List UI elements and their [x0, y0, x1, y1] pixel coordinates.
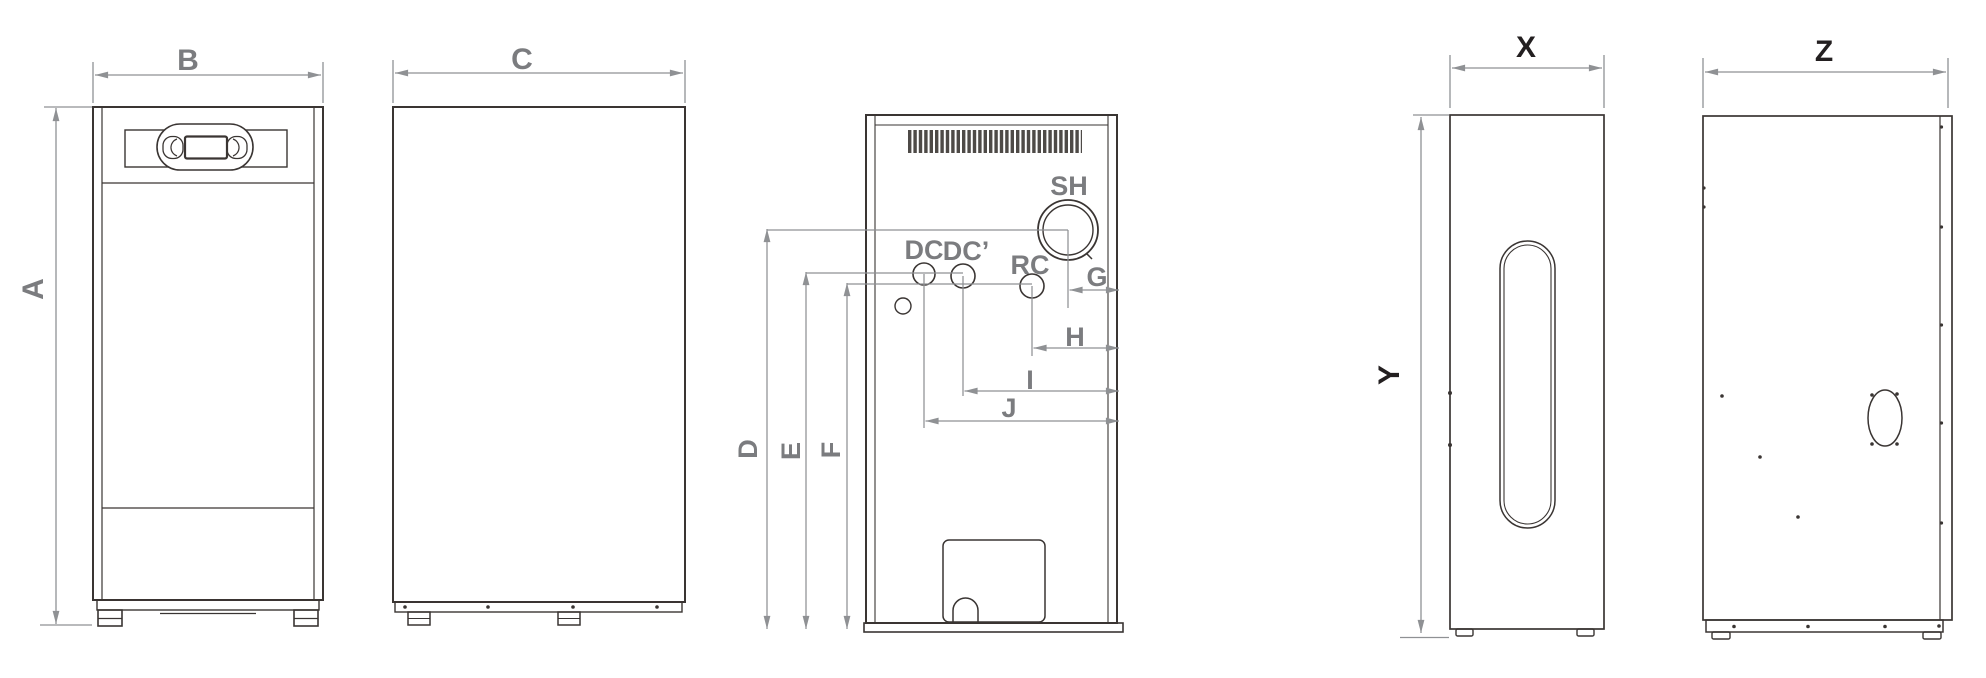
front-base-strip: [97, 600, 319, 610]
door-edge-screw: [1940, 225, 1943, 228]
panel-hinge-dot: [1448, 391, 1452, 395]
side-view: C: [393, 43, 685, 625]
oval-screw: [1895, 442, 1899, 446]
oval-screw: [1895, 392, 1899, 396]
edge-screw: [1702, 186, 1705, 189]
dimension-b: B: [93, 44, 323, 103]
dimension-y: Y: [1373, 115, 1449, 638]
dimension-c: C: [393, 43, 685, 103]
label-g: G: [1086, 262, 1107, 292]
label-sh: SH: [1050, 171, 1088, 201]
label-d: D: [733, 439, 763, 459]
label-i: I: [1026, 365, 1034, 395]
access-panel: [943, 540, 1045, 622]
front-body-outline: [93, 107, 323, 600]
label-b: B: [177, 44, 199, 77]
access-panel-arch: [953, 598, 978, 622]
label-rc: RC: [1011, 250, 1050, 280]
small-port-circle: [895, 298, 911, 314]
dimension-drawing-page: A B C: [0, 0, 1986, 678]
label-x: X: [1516, 31, 1536, 64]
label-z: Z: [1815, 35, 1833, 68]
side-base-screw: [403, 605, 407, 609]
oval-screw: [1870, 393, 1874, 397]
panel-display: [185, 137, 227, 159]
window-slot-outer: [1500, 241, 1555, 528]
panel-screw: [1758, 455, 1762, 459]
panel-hinge-dot: [1448, 443, 1452, 447]
door-edge-screw: [1940, 323, 1943, 326]
base-plate-screw: [1732, 625, 1736, 629]
label-c: C: [511, 43, 533, 76]
side-body-outline: [393, 107, 685, 602]
right-panel-left-foot: [1456, 629, 1473, 636]
left-panel-right-foot: [1923, 632, 1941, 639]
rear-base-band: [864, 623, 1123, 632]
door-edge-screw: [1940, 421, 1943, 424]
side-base-screw: [655, 605, 659, 609]
side-base-plate: [395, 602, 682, 612]
label-h: H: [1065, 322, 1085, 352]
left-panel-outline: [1703, 116, 1952, 620]
base-plate-screw: [1937, 624, 1941, 628]
label-j: J: [1001, 393, 1016, 423]
front-view: A B: [17, 44, 323, 626]
port-sh-tick: [1086, 253, 1092, 259]
label-a: A: [17, 278, 50, 300]
base-plate-screw: [1806, 625, 1810, 629]
label-y: Y: [1373, 365, 1406, 385]
panel-screw: [1720, 394, 1724, 398]
label-f: F: [816, 442, 846, 459]
panel-screw: [1796, 515, 1800, 519]
door-edge-screw: [1940, 521, 1943, 524]
dimension-x: X: [1450, 31, 1604, 108]
base-plate-screw: [1883, 625, 1887, 629]
side-base-screw: [486, 605, 490, 609]
right-panel-outline: [1450, 115, 1604, 629]
door-edge-screw: [1940, 125, 1943, 128]
left-panel-base-plate: [1706, 620, 1943, 632]
label-dc-prime: DC’: [943, 236, 990, 266]
right-panel-right-foot: [1577, 629, 1594, 636]
side-port-oval: [1868, 390, 1902, 446]
side-base-screw: [571, 605, 575, 609]
rear-view: SH DC DC’ RC G H I J D E F: [733, 115, 1123, 632]
left-panel-view: Z: [1702, 35, 1952, 639]
oval-screw: [1870, 442, 1874, 446]
right-panel-view: X Y: [1373, 31, 1604, 638]
drawing-svg: A B C: [0, 0, 1986, 678]
label-e: E: [776, 442, 806, 460]
dimension-a: A: [17, 107, 92, 625]
edge-screw: [1702, 205, 1705, 208]
left-panel-left-foot: [1712, 632, 1730, 639]
dimension-z: Z: [1703, 35, 1948, 108]
label-dc: DC: [905, 235, 944, 265]
window-slot-inner: [1504, 245, 1551, 524]
